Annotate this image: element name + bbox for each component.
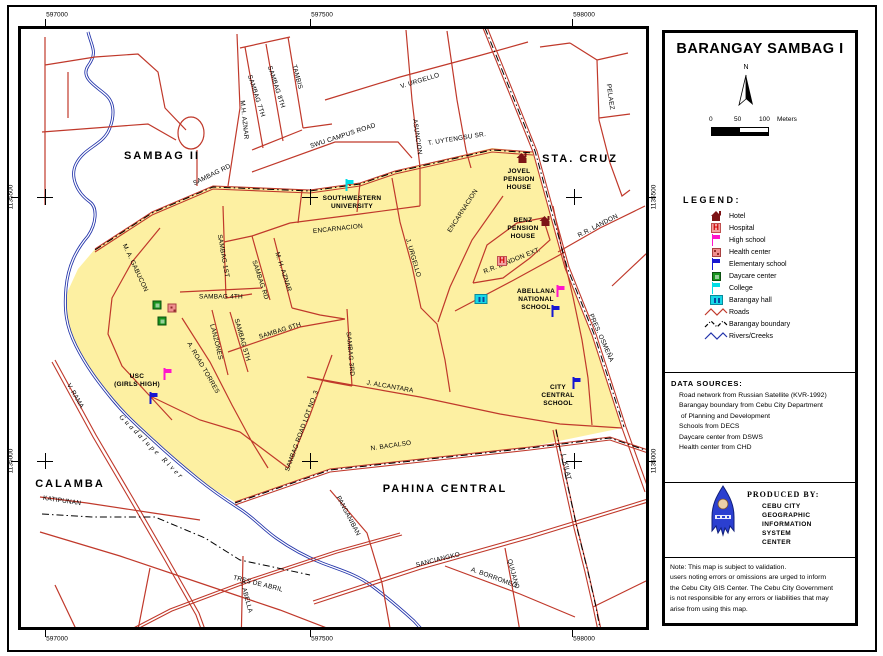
- legend-item: Health center: [703, 246, 790, 258]
- street-label: TAMBIS: [290, 64, 303, 90]
- street-label: R.R. LANDON EXT.: [483, 246, 542, 275]
- street-label: PRES. OSMEÑA: [587, 313, 615, 363]
- river-label: Guadalupe River: [117, 412, 186, 481]
- note-line: Note: This map is subject to validation.: [670, 563, 833, 573]
- scale-tick-50: 50: [734, 116, 741, 123]
- data-sources-list: Road network from Russian Satellite (KVR…: [679, 391, 827, 453]
- legend-item: Hotel: [703, 210, 790, 222]
- grid-crosshair: [37, 189, 53, 205]
- poi-label: JOVEL PENSION HOUSE: [503, 168, 534, 192]
- legend-label: Rivers/Creeks: [729, 333, 773, 340]
- area-label: PAHINA CENTRAL: [383, 483, 508, 495]
- grid-crosshair: [37, 453, 53, 469]
- poi-label: SOUTHWESTERN UNIVERSITY: [323, 195, 382, 211]
- legend-icon-cell: [703, 223, 729, 233]
- street-label: R.R. LANDON: [577, 213, 619, 239]
- legend-title: LEGEND:: [683, 195, 741, 205]
- legend-label: Hospital: [729, 225, 754, 232]
- north-arrow-icon: [735, 74, 757, 113]
- data-source-line: Schools from DECS: [679, 422, 827, 432]
- barangay-hall-icon: [475, 294, 488, 304]
- data-source-line: of Planning and Development: [679, 412, 827, 422]
- legend-item: College: [703, 282, 790, 294]
- street-label: M. A. GABUCON: [121, 243, 149, 293]
- street-label: M.H. AZNAR: [238, 100, 249, 140]
- north-label: N: [665, 64, 827, 71]
- note-line: the Cebu City GIS Center. The Cebu City …: [670, 584, 833, 594]
- data-source-line: Daycare center from DSWS: [679, 433, 827, 443]
- produced-by-line: SYSTEM: [762, 529, 812, 538]
- area-label: CALAMBA: [35, 478, 105, 490]
- high-school-flag-icon: [557, 285, 566, 297]
- elementary-school-flag-icon: [150, 392, 159, 404]
- street-label: ASUNCION: [411, 119, 423, 156]
- street-label: M. H. AZNAR: [273, 251, 292, 292]
- legend-icon-cell: [703, 258, 729, 270]
- grid-tick: [572, 629, 573, 637]
- grid-tick: [310, 19, 311, 27]
- area-label: SAMBAG II: [124, 150, 200, 162]
- street-label: SAMBAG 3RD: [345, 331, 356, 376]
- note-line: is not responsible for any errors or lia…: [670, 594, 833, 604]
- legend-icon-cell: [703, 234, 729, 246]
- legend-item: Roads: [703, 306, 790, 318]
- legend-item: Daycare center: [703, 270, 790, 282]
- street-label: SAMBAG 7TH: [246, 74, 266, 118]
- grid-coordinate-label: 598000: [573, 12, 595, 19]
- elementary-school-flag-icon: [573, 377, 582, 389]
- scale-tick-100: 100: [759, 116, 770, 123]
- street-label: SAMBAG 5TH: [233, 318, 252, 362]
- street-label: SAMBAG 6TH: [258, 321, 302, 341]
- boundary-line-icon: [704, 319, 728, 329]
- divider: [665, 482, 855, 483]
- grid-tick: [648, 461, 656, 462]
- legend-item: Elementary school: [703, 258, 790, 270]
- legend-label: High school: [729, 237, 766, 244]
- legend-item: High school: [703, 234, 790, 246]
- street-label: LANZONES: [208, 323, 224, 360]
- street-label: ENCARNACION: [446, 188, 479, 234]
- grid-crosshair: [302, 189, 318, 205]
- grid-tick: [310, 629, 311, 637]
- grid-tick: [648, 197, 656, 198]
- poi-label: CITY CENTRAL SCHOOL: [541, 384, 574, 408]
- hospital-icon: [497, 256, 507, 266]
- data-source-line: Barangay boundary from Cebu City Departm…: [679, 401, 827, 411]
- data-sources-title: DATA SOURCES:: [671, 379, 743, 388]
- street-label: SAMBAG 8TH: [266, 65, 286, 109]
- street-label: SAMBAG RD: [250, 260, 269, 301]
- legend-icon-cell: [703, 248, 729, 257]
- note-line: arise from using this map.: [670, 605, 833, 615]
- hotel-icon: [517, 153, 528, 163]
- legend-item: Hospital: [703, 222, 790, 234]
- grid-coordinate-label: 598000: [573, 636, 595, 643]
- street-label: T. UYTENGSU SR.: [428, 131, 487, 147]
- map-label-layer: TAMBISSAMBAG 8THSAMBAG 7THM.H. AZNARV. U…: [21, 29, 646, 627]
- college-flag-icon: [712, 282, 721, 294]
- note-line: users noting errors or omissions are urg…: [670, 573, 833, 583]
- roads-line-icon: [704, 307, 728, 317]
- grid-tick: [11, 461, 19, 462]
- grid-coordinate-label: 597000: [46, 12, 68, 19]
- grid-tick: [11, 197, 19, 198]
- produced-by-title: PRODUCED BY:: [747, 490, 819, 499]
- street-label: J. URGELLO: [404, 238, 422, 278]
- map-frame: TAMBISSAMBAG 8THSAMBAG 7THM.H. AZNARV. U…: [18, 26, 649, 630]
- street-label: V. URGELLO: [400, 72, 441, 91]
- hotel-icon: [711, 211, 722, 221]
- legend-label: College: [729, 285, 753, 292]
- elementary-school-flag-icon: [712, 258, 721, 270]
- legend-icon-cell: [703, 331, 729, 341]
- produced-by-line: INFORMATION: [762, 520, 812, 529]
- legend-label: Hotel: [729, 213, 745, 220]
- legend-item: Barangay boundary: [703, 318, 790, 330]
- legend-label: Roads: [729, 309, 749, 316]
- produced-by-line: CENTER: [762, 538, 812, 547]
- street-label: SAMBAG 1ST: [216, 234, 230, 278]
- high-school-flag-icon: [712, 234, 721, 246]
- daycare-center-icon: [153, 301, 162, 310]
- divider: [665, 557, 855, 558]
- river-line-icon: [704, 331, 728, 341]
- street-label: J. ALCANTARA: [366, 379, 414, 394]
- grid-coordinate-label: 597000: [46, 636, 68, 643]
- street-label: V. RAMA: [65, 382, 85, 409]
- college-flag-icon: [346, 179, 355, 191]
- street-label: SANCIANGKO: [415, 551, 461, 569]
- map-sheet: TAMBISSAMBAG 8THSAMBAG 7THM.H. AZNARV. U…: [0, 0, 883, 656]
- legend-label: Barangay boundary: [729, 321, 790, 328]
- legend-label: Daycare center: [729, 273, 776, 280]
- data-source-line: Health center from CHD: [679, 443, 827, 453]
- gis-center-logo-icon: [705, 485, 741, 548]
- divider: [665, 372, 855, 373]
- scale-unit: Meters: [777, 116, 797, 123]
- scale-bar: [711, 127, 769, 136]
- note-text: Note: This map is subject to validation.…: [670, 563, 833, 615]
- data-source-line: Road network from Russian Satellite (KVR…: [679, 391, 827, 401]
- street-label: KATIPUNAN: [42, 495, 81, 507]
- produced-by-line: CEBU CITY: [762, 502, 812, 511]
- health-center-icon: [168, 304, 177, 313]
- legend-item: Barangay hall: [703, 294, 790, 306]
- health-center-icon: [712, 248, 721, 257]
- high-school-flag-icon: [164, 368, 173, 380]
- street-label: SWU CAMPUS ROAD: [309, 122, 376, 150]
- street-label: SAMBAG RD: [192, 163, 232, 187]
- grid-coordinate-label: 597500: [311, 12, 333, 19]
- barangay-hall-icon: [710, 295, 723, 305]
- grid-crosshair: [566, 189, 582, 205]
- legend-list: HotelHospitalHigh schoolHealth centerEle…: [703, 210, 790, 342]
- street-label: ENCARNACION: [313, 223, 364, 235]
- elementary-school-flag-icon: [552, 305, 561, 317]
- map-title: BARANGAY SAMBAG I: [665, 41, 855, 57]
- grid-coordinate-label: 597500: [311, 636, 333, 643]
- daycare-center-icon: [158, 317, 167, 326]
- legend-label: Elementary school: [729, 261, 787, 268]
- hotel-icon: [540, 216, 551, 226]
- info-panel: BARANGAY SAMBAG I N 0 50 100 Meters LEGE…: [662, 30, 858, 626]
- street-label: N. BACALSO: [370, 440, 412, 453]
- grid-tick: [45, 19, 46, 27]
- poi-label: ABELLANA NATIONAL SCHOOL: [517, 288, 555, 312]
- scale-tick-0: 0: [709, 116, 713, 123]
- daycare-center-icon: [712, 272, 721, 281]
- grid-tick: [45, 629, 46, 637]
- poi-label: USC (GIRLS HIGH): [114, 373, 160, 389]
- grid-crosshair: [302, 453, 318, 469]
- legend-icon-cell: [703, 307, 729, 317]
- street-label: PANGANIBAN: [335, 495, 362, 537]
- street-label: PELAEZ: [605, 84, 616, 111]
- grid-tick: [572, 19, 573, 27]
- legend-label: Barangay hall: [729, 297, 772, 304]
- legend-icon-cell: [703, 295, 729, 305]
- produced-by-list: CEBU CITYGEOGRAPHICINFORMATIONSYSTEMCENT…: [762, 502, 812, 547]
- grid-crosshair: [566, 453, 582, 469]
- legend-icon-cell: [703, 282, 729, 294]
- produced-by-line: GEOGRAPHIC: [762, 511, 812, 520]
- street-label: SAMBAG 4TH: [199, 294, 243, 301]
- legend-icon-cell: [703, 319, 729, 329]
- legend-icon-cell: [703, 211, 729, 221]
- hospital-icon: [711, 223, 721, 233]
- legend-item: Rivers/Creeks: [703, 330, 790, 342]
- legend-label: Health center: [729, 249, 771, 256]
- area-label: STA. CRUZ: [542, 153, 618, 165]
- poi-label: BENZ PENSION HOUSE: [507, 217, 538, 241]
- legend-icon-cell: [703, 272, 729, 281]
